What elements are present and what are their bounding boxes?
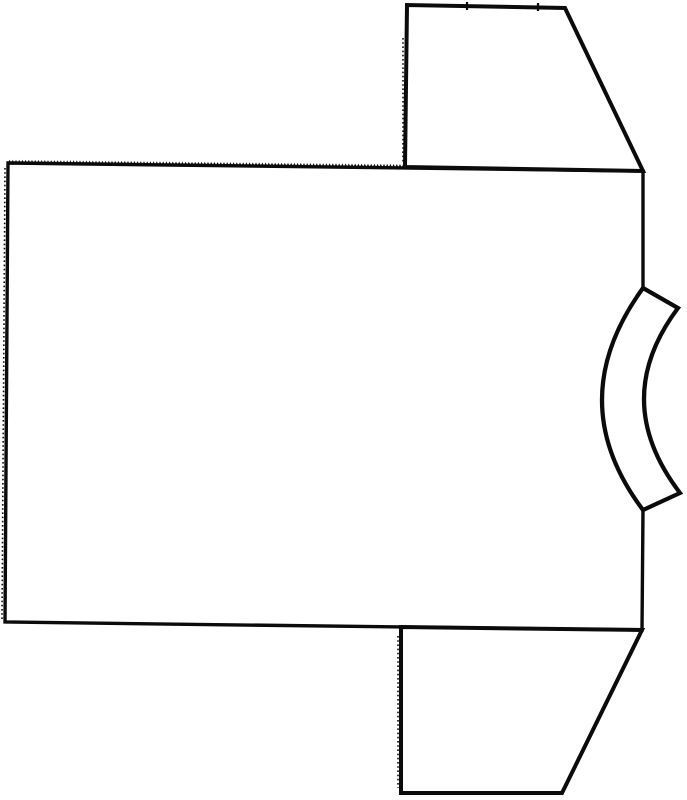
bottom-sleeve-outline <box>401 627 642 793</box>
body-panel-outline <box>5 163 643 630</box>
pattern-drawing-canvas <box>0 0 687 800</box>
top-sleeve-outline <box>405 5 643 171</box>
tshirt-pattern-svg <box>0 0 687 800</box>
